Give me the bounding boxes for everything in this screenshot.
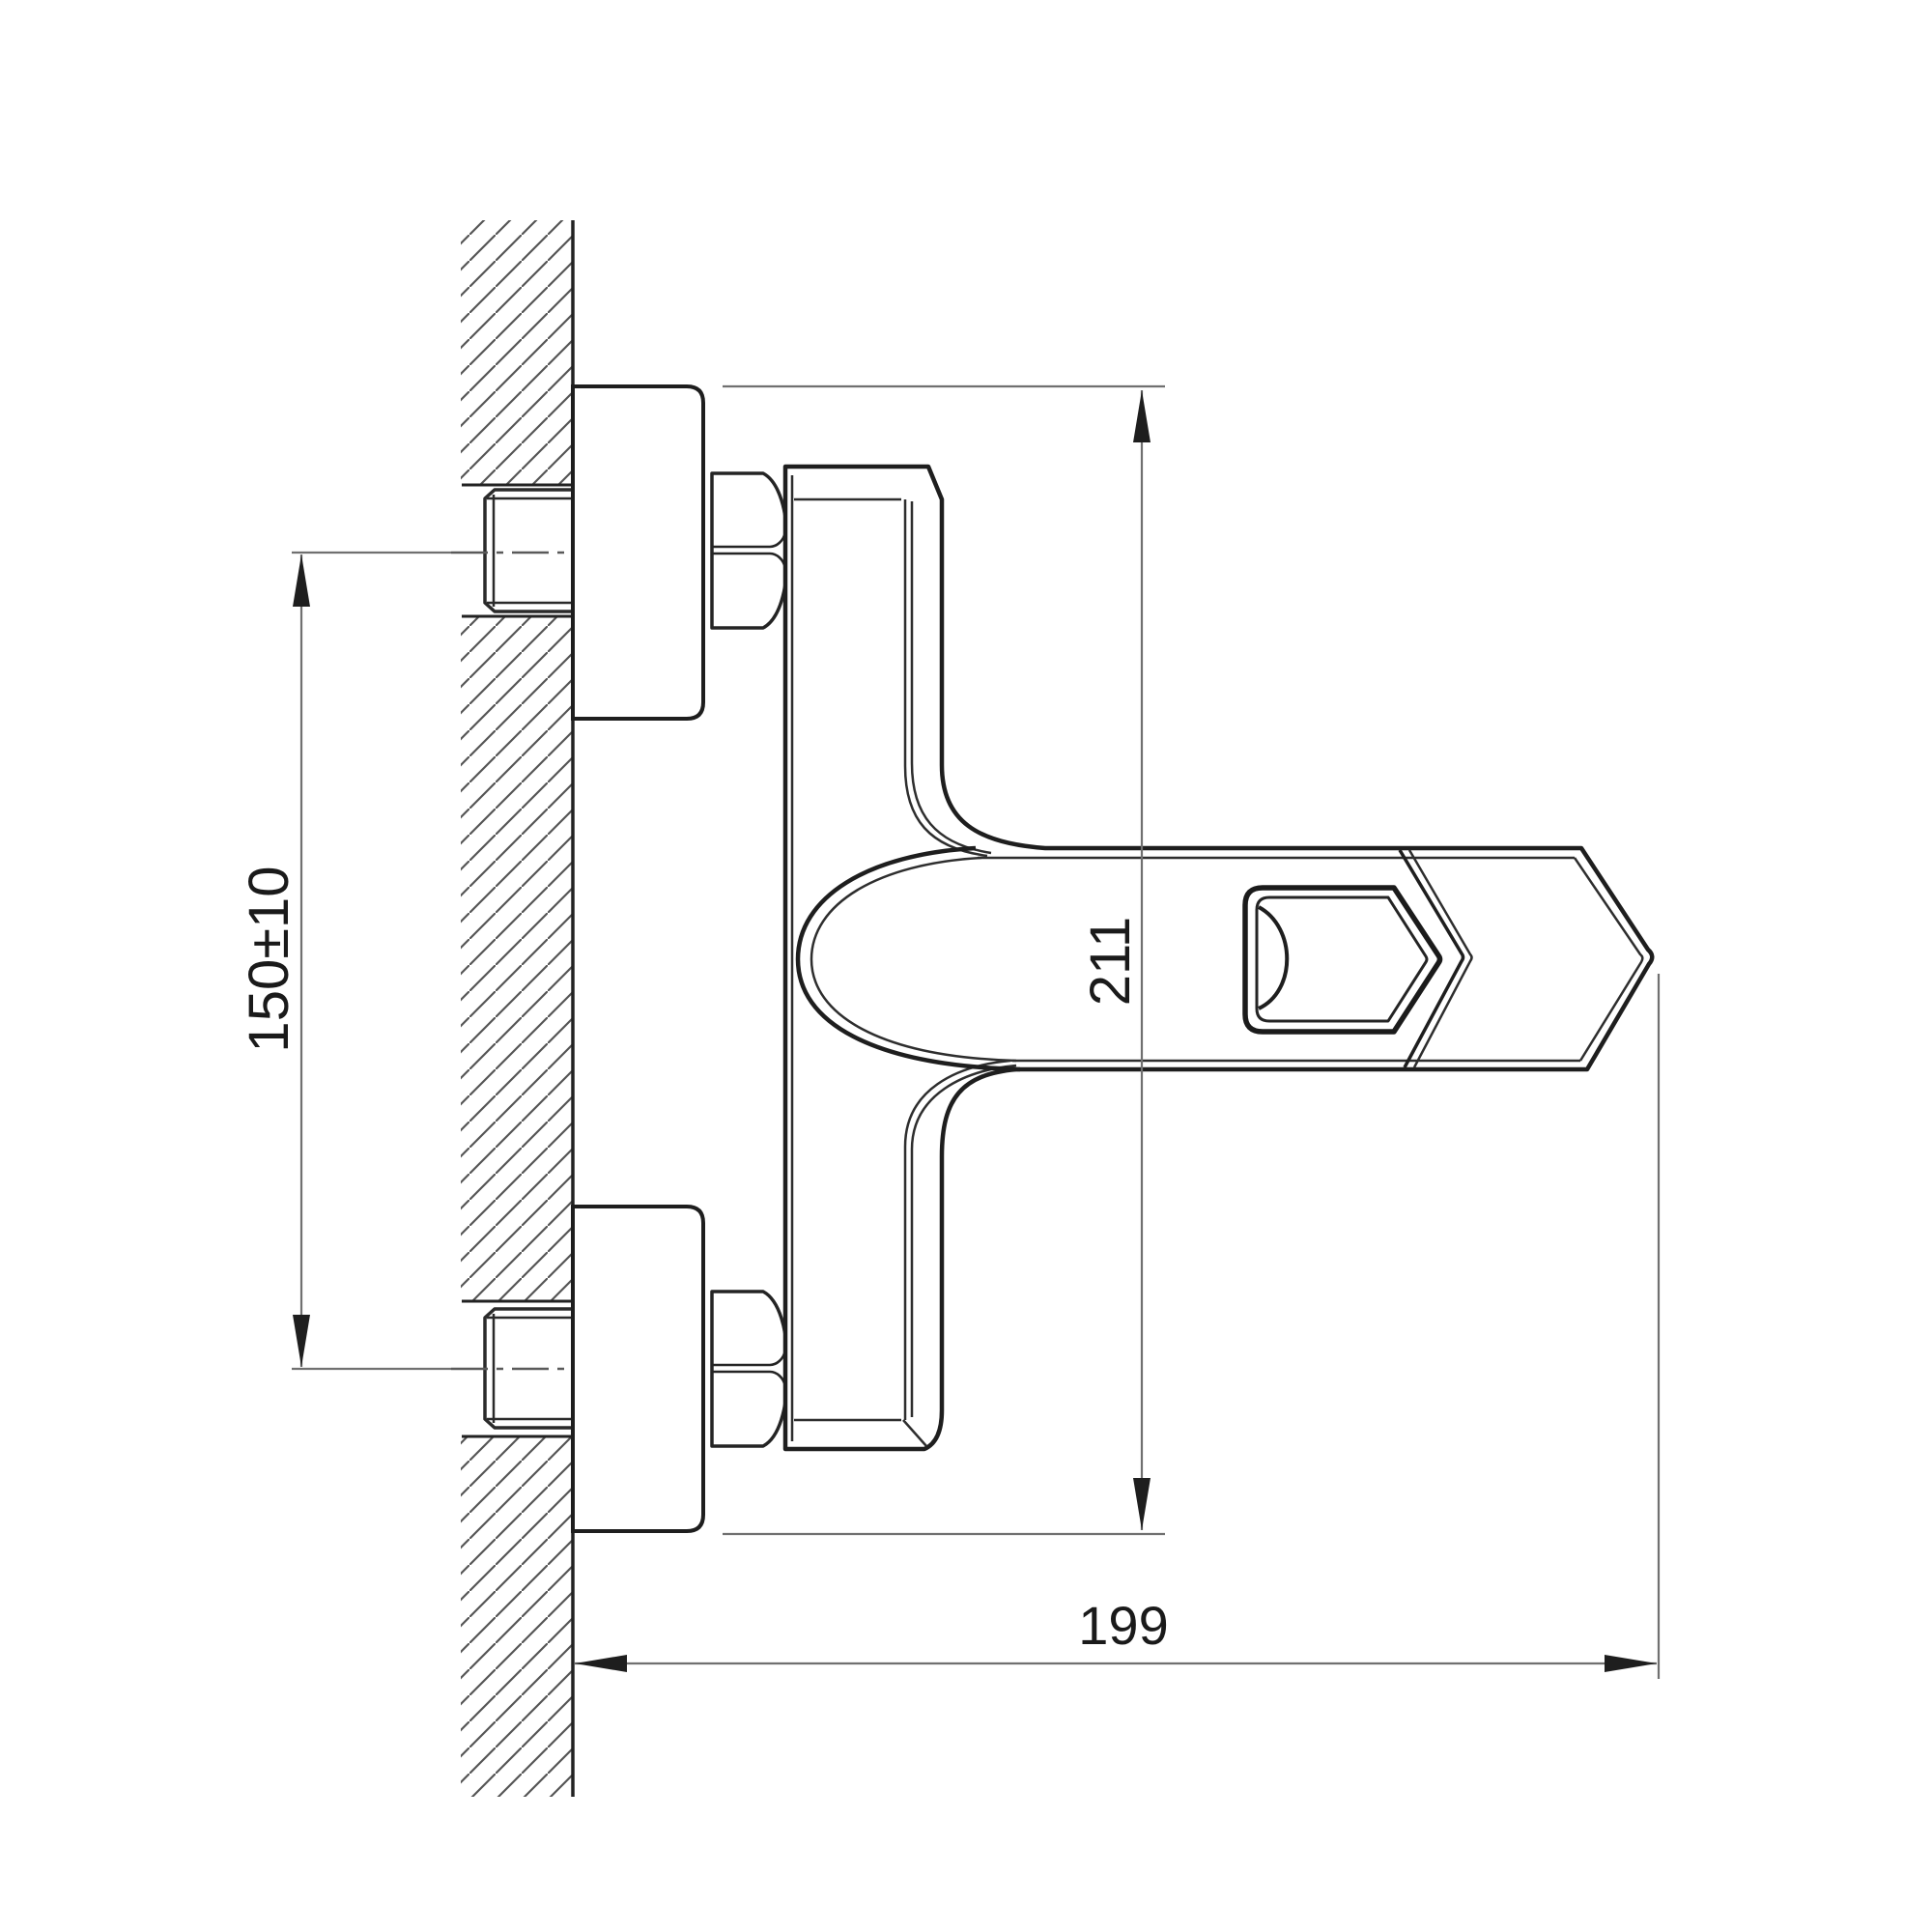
dim-150-lines [292,553,451,1369]
dim-211-label: 211 [1079,917,1142,1006]
lower-escutcheon [573,1207,703,1531]
wall-hatch-middle [461,616,573,1301]
dim-199-label: 199 [1078,1595,1168,1656]
dimension-pipe-spacing: 150±10 [238,553,451,1369]
dim-199-arrow-left [575,1655,627,1672]
technical-drawing-page: 150±10 211 199 [0,0,1932,1932]
upper-pipe-outline [485,490,573,611]
lower-nut-outline [712,1292,787,1446]
dim-199-arrow-right [1605,1655,1657,1672]
wall-section [461,220,573,1797]
dim-211-arrow-up [1133,390,1151,442]
upper-nut-outline [712,473,787,628]
faucet-installation-drawing: 150±10 211 199 [0,0,1932,1932]
wall-hatch-upper [461,220,573,485]
lower-hex-nut [712,1292,787,1446]
dim-150-arrow-down [293,1315,310,1367]
upper-hex-nut [712,473,787,628]
upper-escutcheon [573,386,703,719]
faucet-body-and-lever-outline [785,467,1652,1449]
dim-150-label: 150±10 [238,866,300,1052]
dim-211-arrow-down [1133,1478,1151,1530]
wall-hatch-lower [461,1436,573,1797]
handle-window-outer [1245,888,1440,1032]
handle-window [1245,888,1440,1032]
dim-150-arrow-up [293,554,310,607]
upper-supply-pipe [485,490,573,611]
